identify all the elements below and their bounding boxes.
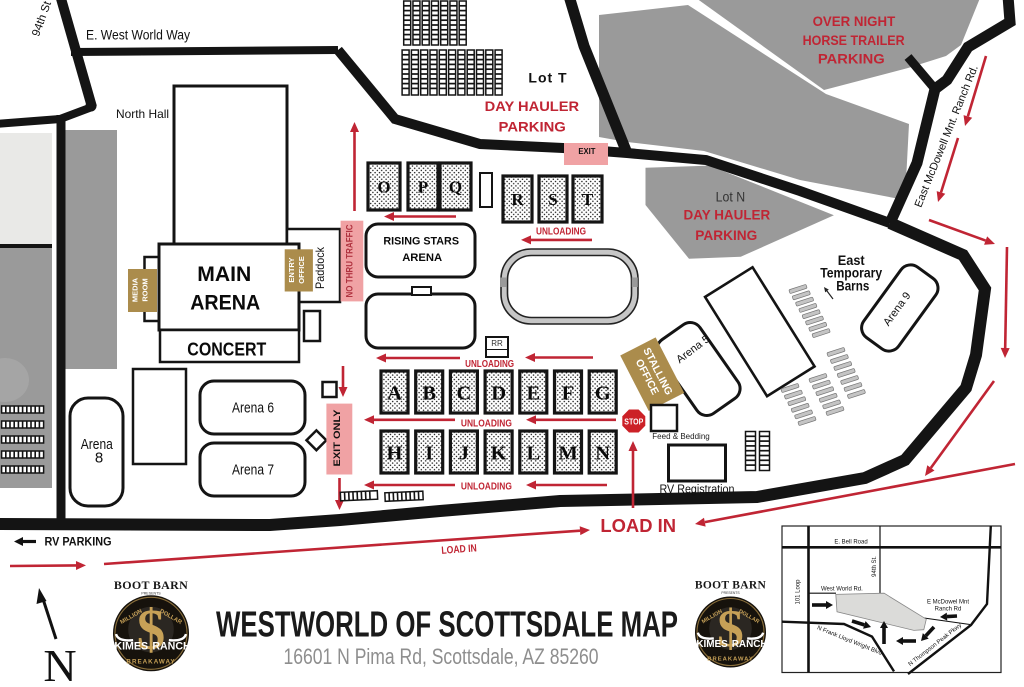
svg-text:G: G [595, 382, 611, 404]
svg-text:E. Bell Road: E. Bell Road [834, 540, 867, 546]
svg-text:Lot T: Lot T [528, 70, 567, 86]
svg-text:L: L [526, 442, 540, 464]
svg-text:WESTWORLD OF SCOTTSDALE MAP: WESTWORLD OF SCOTTSDALE MAP [216, 604, 678, 645]
svg-text:EXIT: EXIT [578, 147, 595, 156]
svg-text:LOAD IN: LOAD IN [600, 516, 676, 536]
svg-text:Feed & Bedding: Feed & Bedding [652, 431, 710, 441]
svg-text:Paddock: Paddock [313, 246, 327, 289]
svg-text:CONCERT: CONCERT [187, 339, 266, 359]
svg-text:MAIN: MAIN [197, 263, 251, 286]
svg-text:DAY HAULER: DAY HAULER [684, 207, 771, 223]
svg-text:HORSE TRAILER: HORSE TRAILER [803, 32, 905, 48]
svg-text:ARENA: ARENA [402, 252, 442, 264]
svg-text:E McDowel Mnt: E McDowel Mnt [927, 600, 969, 606]
svg-text:F: F [562, 382, 575, 404]
svg-text:I: I [425, 442, 433, 464]
svg-text:RV PARKING: RV PARKING [45, 534, 112, 548]
svg-text:UNLOADING: UNLOADING [461, 419, 512, 430]
svg-text:STOP: STOP [624, 417, 644, 426]
svg-text:Lot N: Lot N [716, 189, 746, 205]
svg-text:H: H [387, 442, 403, 464]
svg-text:E: E [526, 382, 540, 404]
svg-text:Barns: Barns [836, 279, 869, 294]
svg-text:D: D [491, 382, 506, 404]
svg-text:RISING STARS: RISING STARS [383, 236, 459, 248]
svg-text:UNLOADING: UNLOADING [465, 359, 514, 370]
svg-text:KIMES: KIMES [114, 640, 148, 652]
svg-text:C: C [456, 382, 471, 404]
svg-text:RR: RR [491, 339, 503, 348]
svg-text:Ranch Rd: Ranch Rd [935, 607, 962, 613]
svg-text:ARENA: ARENA [190, 292, 260, 315]
svg-text:101 Loop: 101 Loop [796, 579, 802, 605]
svg-text:BREAKAWAY: BREAKAWAY [126, 659, 175, 666]
svg-text:K: K [491, 442, 507, 464]
svg-text:KIMES: KIMES [696, 639, 728, 650]
svg-text:J: J [459, 442, 469, 464]
svg-text:N: N [43, 640, 76, 682]
svg-text:P: P [418, 178, 428, 197]
svg-text:ENTRY: ENTRY [287, 257, 296, 282]
svg-text:E. West World Way: E. West World Way [86, 28, 190, 43]
svg-text:RANCH: RANCH [732, 639, 768, 650]
svg-text:B: B [422, 382, 436, 404]
svg-text:OVER NIGHT: OVER NIGHT [813, 13, 896, 29]
svg-text:PRESENTS: PRESENTS [721, 591, 740, 595]
svg-text:BOOT BARN: BOOT BARN [114, 578, 188, 592]
svg-text:North Hall: North Hall [116, 107, 169, 121]
svg-text:Arena 7: Arena 7 [232, 461, 274, 478]
svg-text:O: O [377, 178, 390, 197]
svg-text:UNLOADING: UNLOADING [536, 226, 586, 237]
svg-text:Q: Q [449, 178, 462, 197]
svg-text:94th St.: 94th St. [872, 556, 878, 577]
svg-text:PARKING: PARKING [499, 119, 566, 135]
svg-text:NO THRU TRAFFIC: NO THRU TRAFFIC [345, 224, 356, 297]
svg-text:OFFICE: OFFICE [297, 256, 306, 284]
svg-text:DAY HAULER: DAY HAULER [485, 98, 580, 114]
svg-text:West World Rd.: West World Rd. [821, 587, 863, 593]
svg-text:Arena 6: Arena 6 [232, 400, 274, 417]
svg-text:8: 8 [95, 450, 103, 467]
svg-text:RANCH: RANCH [152, 640, 190, 652]
svg-text:PARKING: PARKING [818, 50, 885, 66]
svg-text:R: R [511, 190, 524, 209]
svg-text:PARKING: PARKING [695, 227, 757, 243]
svg-text:M: M [558, 442, 577, 464]
svg-text:UNLOADING: UNLOADING [461, 482, 512, 493]
svg-text:PRESENTS: PRESENTS [141, 592, 161, 596]
svg-text:ROOM: ROOM [141, 278, 150, 301]
svg-text:BOOT BARN: BOOT BARN [695, 580, 767, 592]
svg-text:LOAD IN: LOAD IN [441, 542, 477, 556]
svg-text:16601 N Pima Rd, Scottsdale, A: 16601 N Pima Rd, Scottsdale, AZ 85260 [284, 644, 599, 669]
svg-text:MEDIA: MEDIA [131, 277, 140, 302]
svg-text:T: T [582, 190, 594, 209]
svg-text:RV Registration: RV Registration [660, 484, 735, 496]
svg-text:A: A [387, 382, 402, 404]
svg-text:S: S [548, 190, 557, 209]
svg-text:N: N [595, 442, 610, 464]
svg-text:BREAKAWAY: BREAKAWAY [707, 656, 753, 662]
svg-text:EXIT ONLY: EXIT ONLY [332, 409, 343, 467]
